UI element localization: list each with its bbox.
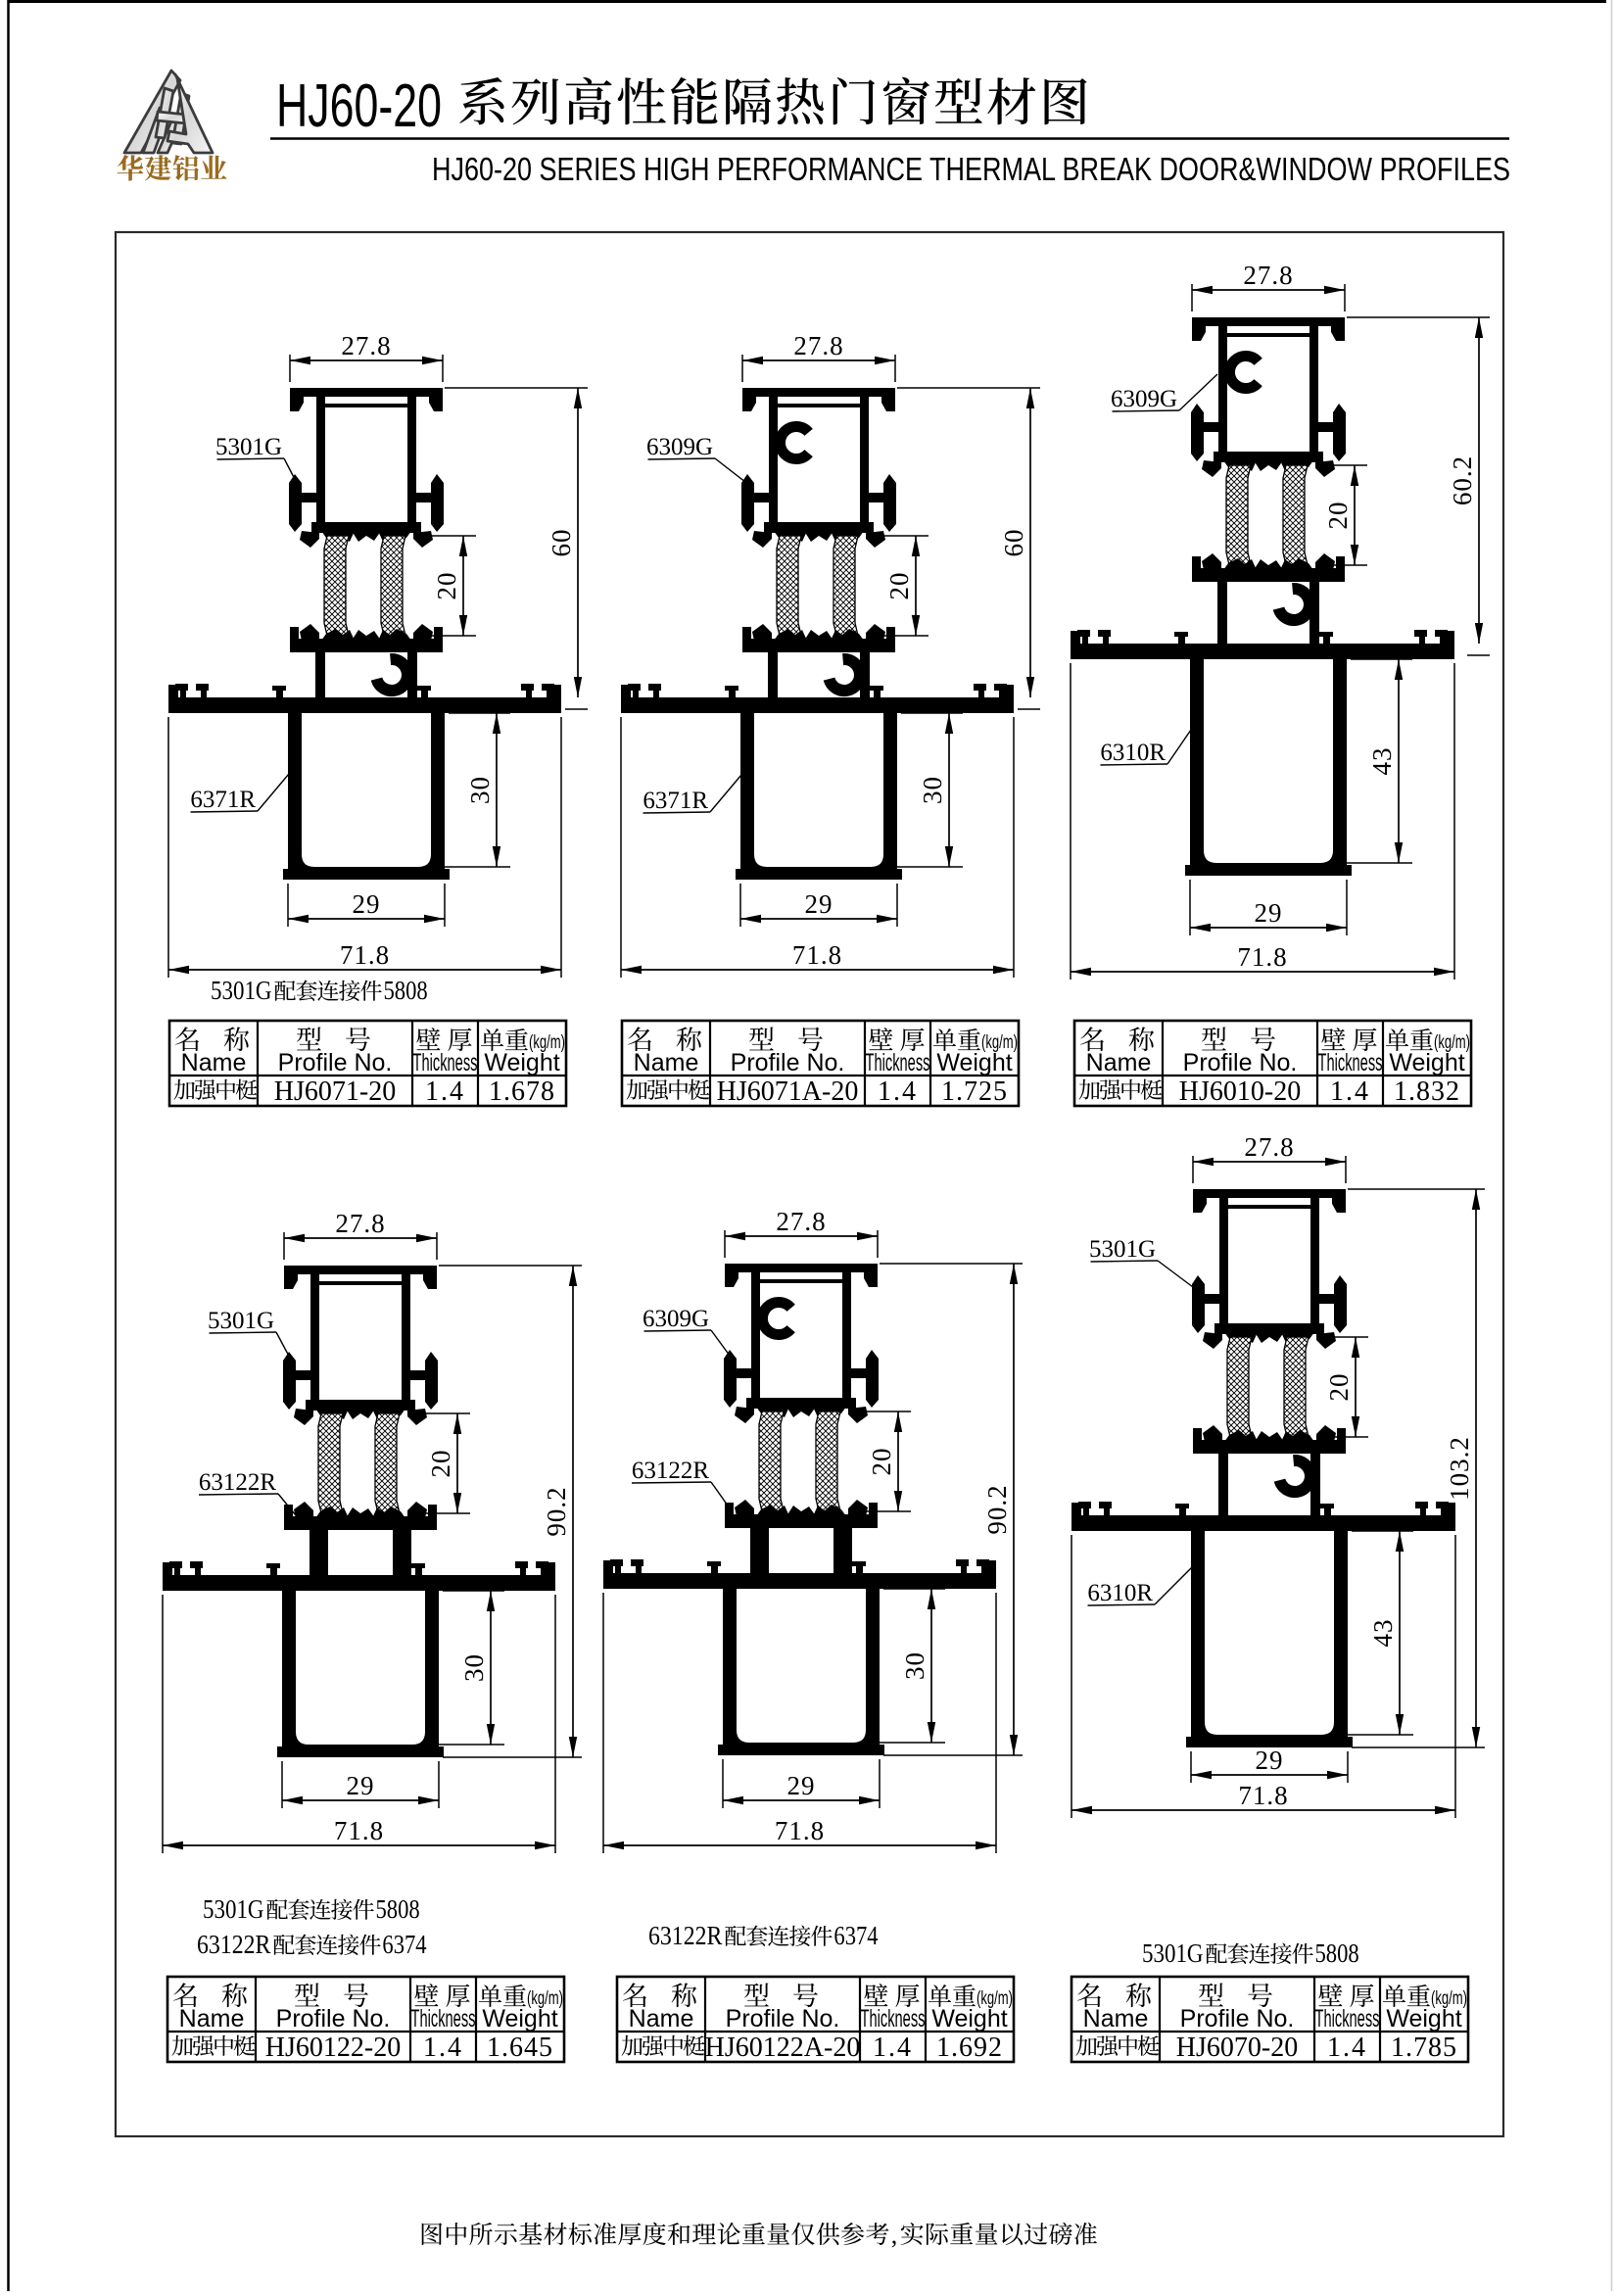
svg-text:Weight: Weight [1386,2005,1461,2033]
svg-text:1.4: 1.4 [425,1076,465,1107]
svg-text:63122R: 63122R [632,1458,710,1484]
svg-text:6309G: 6309G [1111,386,1177,412]
svg-text:1.832: 1.832 [1394,1076,1460,1107]
svg-text:Name: Name [629,2005,694,2033]
svg-text:20: 20 [432,572,461,600]
svg-text:30: 30 [465,776,495,804]
svg-text:60: 60 [999,529,1028,557]
svg-text:Weight: Weight [482,2005,557,2033]
svg-text:60: 60 [547,529,576,557]
svg-text:6309G: 6309G [646,434,713,460]
svg-text:30: 30 [918,776,947,804]
svg-text:30: 30 [900,1651,929,1680]
svg-text:29: 29 [1256,1746,1284,1775]
svg-text:103.2: 103.2 [1445,1436,1474,1501]
svg-text:20: 20 [867,1448,896,1476]
svg-text:6374: 6374 [382,1930,427,1959]
svg-text:Thickness: Thickness [413,1049,478,1076]
svg-text:Thickness: Thickness [861,2005,926,2033]
svg-text:Thickness: Thickness [1318,1049,1383,1076]
svg-text:Weight: Weight [936,1049,1012,1076]
svg-text:71.8: 71.8 [792,940,842,970]
svg-text:5301G: 5301G [211,976,272,1005]
svg-text:27.8: 27.8 [335,1209,385,1238]
svg-text:6371R: 6371R [643,788,708,814]
svg-text:Weight: Weight [931,2005,1007,2033]
svg-text:1.692: 1.692 [936,2033,1003,2063]
svg-text:6371R: 6371R [190,787,256,813]
svg-text:27.8: 27.8 [793,331,843,360]
svg-text:HJ60122A-20: HJ60122A-20 [705,2033,861,2063]
svg-text:Profile No.: Profile No. [276,2005,391,2033]
svg-text:60.2: 60.2 [1448,455,1477,505]
svg-text:71.8: 71.8 [334,1816,384,1845]
svg-text:1.725: 1.725 [941,1076,1008,1107]
svg-text:1.785: 1.785 [1391,2033,1457,2063]
svg-text:43: 43 [1368,1619,1398,1648]
svg-text:Weight: Weight [1389,1049,1464,1076]
svg-text:HJ60-20 SERIES HIGH PERFORMANC: HJ60-20 SERIES HIGH PERFORMANCE THERMAL … [432,151,1510,187]
svg-text:HJ6071A-20: HJ6071A-20 [717,1076,859,1107]
svg-text:1.4: 1.4 [423,2033,463,2063]
svg-text:63122R: 63122R [197,1930,270,1959]
svg-text:,: , [891,2221,898,2249]
svg-text:1.4: 1.4 [873,2033,913,2063]
svg-text:27.8: 27.8 [341,331,391,360]
svg-text:HJ6070-20: HJ6070-20 [1176,2033,1298,2063]
svg-text:29: 29 [805,889,833,919]
svg-text:Weight: Weight [484,1049,559,1076]
svg-text:29: 29 [1255,898,1283,928]
svg-text:20: 20 [426,1450,455,1478]
svg-text:1.4: 1.4 [1327,2033,1367,2063]
svg-text:Name: Name [179,2005,245,2033]
svg-text:Name: Name [634,1049,699,1076]
svg-text:5301G: 5301G [1089,1236,1156,1263]
svg-text:Name: Name [1083,2005,1149,2033]
svg-text:27.8: 27.8 [1244,1132,1294,1162]
svg-text:5808: 5808 [384,976,428,1005]
svg-text:29: 29 [347,1771,375,1800]
svg-text:1.4: 1.4 [878,1076,918,1107]
svg-text:6309G: 6309G [643,1306,709,1332]
svg-text:20: 20 [1324,1373,1354,1402]
svg-text:HJ60122-20: HJ60122-20 [265,2033,401,2063]
svg-text:Name: Name [1086,1049,1152,1076]
svg-text:30: 30 [459,1653,489,1682]
svg-text:Thickness: Thickness [866,1049,930,1076]
svg-text:5301G: 5301G [215,434,282,460]
svg-text:63122R: 63122R [199,1469,277,1496]
svg-text:HJ6010-20: HJ6010-20 [1179,1076,1301,1107]
svg-text:71.8: 71.8 [340,940,390,970]
svg-text:1.4: 1.4 [1330,1076,1370,1107]
svg-text:5808: 5808 [1315,1938,1359,1968]
svg-text:1.678: 1.678 [489,1076,555,1107]
svg-text:1.645: 1.645 [487,2033,553,2063]
svg-text:6310R: 6310R [1087,1580,1153,1606]
svg-text:6374: 6374 [833,1921,879,1950]
svg-text:29: 29 [787,1771,816,1800]
svg-text:5301G: 5301G [203,1894,264,1924]
svg-text:63122R: 63122R [648,1921,722,1950]
svg-text:Profile No.: Profile No. [1183,1049,1298,1076]
svg-text:20: 20 [884,572,914,600]
svg-text:HJ60-20: HJ60-20 [276,72,442,140]
svg-text:6310R: 6310R [1100,740,1166,766]
svg-text:43: 43 [1367,747,1397,776]
svg-text:Name: Name [181,1049,247,1076]
svg-text:71.8: 71.8 [1238,1781,1288,1810]
svg-text:71.8: 71.8 [1237,942,1287,972]
svg-text:Profile No.: Profile No. [731,1049,845,1076]
svg-text:Thickness: Thickness [411,2005,476,2033]
svg-text:5301G: 5301G [208,1308,274,1334]
svg-text:27.8: 27.8 [1243,261,1293,290]
svg-text:Profile No.: Profile No. [726,2005,840,2033]
svg-text:90.2: 90.2 [542,1486,571,1536]
svg-text:5808: 5808 [376,1894,420,1924]
svg-text:29: 29 [353,889,381,919]
svg-text:20: 20 [1323,502,1353,530]
svg-text:71.8: 71.8 [775,1816,825,1845]
svg-text:5301G: 5301G [1142,1938,1204,1968]
svg-text:90.2: 90.2 [982,1484,1012,1534]
svg-text:HJ6071-20: HJ6071-20 [274,1076,396,1107]
svg-text:Thickness: Thickness [1315,2005,1380,2033]
svg-text:27.8: 27.8 [776,1207,826,1236]
svg-text:Profile No.: Profile No. [278,1049,393,1076]
svg-text:Profile No.: Profile No. [1180,2005,1295,2033]
